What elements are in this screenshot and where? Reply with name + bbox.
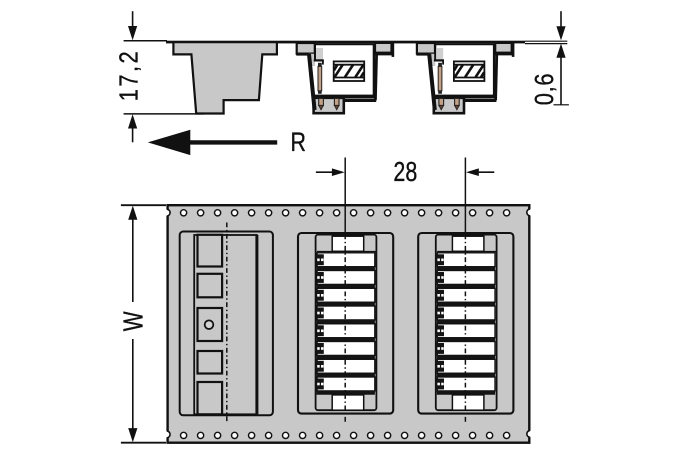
svg-text:17,2: 17,2 [115,49,144,101]
svg-text:R: R [291,128,306,158]
svg-text:W: W [119,311,150,331]
svg-text:0,6: 0,6 [530,73,559,105]
svg-text:28: 28 [393,158,417,188]
